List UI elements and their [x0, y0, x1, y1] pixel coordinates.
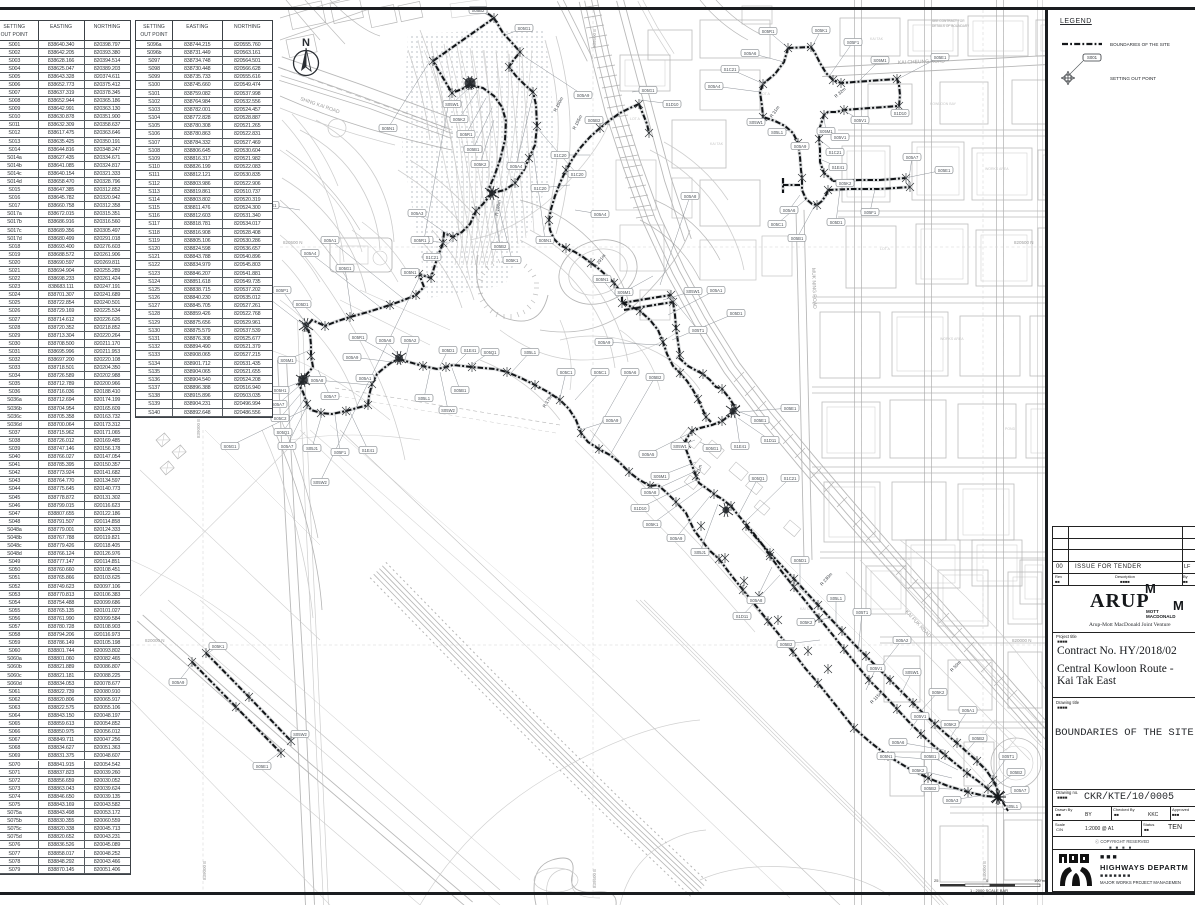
svg-text:S05Q1: S05Q1	[751, 476, 765, 481]
svg-text:S001: S001	[1087, 55, 1098, 60]
svg-text:820500 N: 820500 N	[283, 240, 303, 245]
svg-text:S05M1: S05M1	[653, 474, 667, 479]
svg-text:S05A8: S05A8	[644, 490, 657, 495]
svg-text:S05E1: S05E1	[256, 764, 269, 769]
svg-text:S1D10: S1D10	[894, 111, 907, 116]
svg-text:S05A1: S05A1	[962, 708, 975, 713]
svg-text:S05A1: S05A1	[710, 288, 723, 293]
svg-text:S05A9: S05A9	[598, 340, 611, 345]
svg-text:LOT A: LOT A	[630, 117, 641, 121]
svg-text:S05E1: S05E1	[938, 168, 951, 173]
svg-text:S05K2: S05K2	[912, 768, 925, 773]
svg-text:S05Q1: S05Q1	[483, 350, 497, 355]
svg-text:S05N1: S05N1	[404, 270, 417, 275]
svg-text:S05A7: S05A7	[324, 394, 337, 399]
svg-text:LOT A: LOT A	[880, 247, 891, 251]
svg-text:S1C21: S1C21	[829, 150, 842, 155]
svg-text:S05A9: S05A9	[577, 93, 590, 98]
svg-text:BOUNDARIES OF THE SITE: BOUNDARIES OF THE SITE	[1110, 42, 1170, 47]
svg-text:S05W1: S05W1	[445, 102, 459, 107]
svg-text:S05E1: S05E1	[784, 406, 797, 411]
svg-text:100 m: 100 m	[1034, 878, 1046, 883]
svg-text:S05L1: S05L1	[524, 350, 537, 355]
svg-text:S05Q1: S05Q1	[276, 430, 290, 435]
svg-text:S05L1: S05L1	[771, 130, 784, 135]
svg-text:S05A2: S05A2	[896, 638, 909, 643]
svg-text:S05V1: S05V1	[870, 666, 883, 671]
svg-text:S1E41: S1E41	[832, 165, 845, 170]
svg-text:S05A3: S05A3	[946, 798, 959, 803]
svg-text:S05C2: S05C2	[274, 416, 287, 421]
svg-text:S05A9: S05A9	[670, 536, 683, 541]
svg-text:S05B1: S05B1	[924, 754, 937, 759]
svg-text:S05C1: S05C1	[560, 370, 573, 375]
svg-text:S05F1: S05F1	[847, 40, 860, 45]
svg-text:S1D10: S1D10	[666, 102, 679, 107]
svg-text:S05A8: S05A8	[684, 194, 697, 199]
svg-text:S05A1: S05A1	[324, 238, 337, 243]
svg-text:S05B1: S05B1	[467, 147, 480, 152]
svg-text:S05A4: S05A4	[304, 251, 317, 256]
svg-text:S05W2: S05W2	[293, 732, 307, 737]
svg-text:S05K2: S05K2	[932, 690, 945, 695]
svg-text:S05A7: S05A7	[281, 444, 294, 449]
svg-text:S05G1: S05G1	[641, 88, 655, 93]
svg-text:S05K2: S05K2	[944, 722, 957, 727]
svg-text:S05E1: S05E1	[934, 55, 947, 60]
svg-text:S05D1: S05D1	[442, 348, 455, 353]
svg-text:S05M1: S05M1	[873, 58, 887, 63]
svg-text:S05R1: S05R1	[460, 132, 473, 137]
svg-text:S05A7: S05A7	[906, 155, 919, 160]
svg-text:S05L1: S05L1	[830, 596, 843, 601]
svg-text:S1D11: S1D11	[764, 438, 777, 443]
svg-text:S05T1: S05T1	[692, 328, 705, 333]
svg-text:S05R1: S05R1	[762, 29, 775, 34]
svg-text:S1D11: S1D11	[736, 614, 749, 619]
svg-text:S05E1: S05E1	[754, 418, 767, 423]
svg-text:S1D10: S1D10	[634, 506, 647, 511]
svg-text:S05D1: S05D1	[830, 220, 843, 225]
svg-text:S1C20: S1C20	[534, 186, 547, 191]
svg-text:S05B1: S05B1	[791, 236, 804, 241]
svg-text:S05K1: S05K1	[815, 28, 828, 33]
svg-text:839000 E: 839000 E	[202, 861, 207, 880]
svg-text:S05V1: S05V1	[914, 714, 927, 719]
svg-text:S05B2: S05B2	[649, 375, 662, 380]
svg-text:S05B2: S05B2	[588, 118, 601, 123]
svg-text:S05W1: S05W1	[673, 444, 687, 449]
svg-text:839500 E: 839500 E	[592, 869, 597, 888]
svg-text:S05A8: S05A8	[750, 598, 763, 603]
svg-text:S05B2: S05B2	[1010, 770, 1023, 775]
svg-text:S05A7: S05A7	[272, 402, 285, 407]
svg-text:S05W1: S05W1	[749, 120, 763, 125]
svg-text:S05F1: S05F1	[864, 210, 877, 215]
svg-text:S05K1: S05K1	[506, 258, 519, 263]
svg-text:S05K2: S05K2	[839, 181, 852, 186]
svg-text:WORKS AREA: WORKS AREA	[985, 167, 1009, 171]
svg-text:S05W1: S05W1	[905, 670, 919, 675]
svg-text:S05A3: S05A3	[411, 211, 424, 216]
svg-text:S05T1: S05T1	[1002, 754, 1015, 759]
svg-text:S1C20: S1C20	[554, 153, 567, 158]
svg-text:S05B2: S05B2	[972, 736, 985, 741]
svg-text:S05G1: S05G1	[223, 444, 237, 449]
svg-text:S1E41: S1E41	[734, 444, 747, 449]
svg-text:S05A6: S05A6	[783, 208, 796, 213]
svg-text:S05A1: S05A1	[359, 376, 372, 381]
svg-text:S05A6: S05A6	[744, 51, 757, 56]
svg-text:S1E41: S1E41	[362, 448, 375, 453]
svg-text:820000 N: 820000 N	[1012, 638, 1032, 643]
svg-text:S05A9: S05A9	[346, 355, 359, 360]
svg-text:KAI TAK: KAI TAK	[710, 142, 724, 146]
svg-text:S1C21: S1C21	[426, 255, 439, 260]
svg-text:SEE CONTRACT FOR: SEE CONTRACT FOR	[932, 19, 965, 23]
svg-text:N: N	[302, 37, 310, 49]
svg-text:S05D1: S05D1	[296, 302, 309, 307]
svg-text:KAI TAK: KAI TAK	[870, 37, 884, 41]
svg-text:S05A8: S05A8	[311, 378, 324, 383]
svg-text:S05G1: S05G1	[705, 446, 719, 451]
svg-text:S05W2: S05W2	[441, 408, 455, 413]
svg-text:S05A7: S05A7	[1014, 788, 1027, 793]
svg-text:S05N1: S05N1	[596, 277, 609, 282]
svg-text:25: 25	[934, 878, 939, 883]
svg-text:S05V1: S05V1	[854, 118, 867, 123]
svg-text:S05D1: S05D1	[794, 558, 807, 563]
svg-text:POND: POND	[1005, 427, 1016, 431]
svg-text:S05H1: S05H1	[274, 388, 287, 393]
svg-text:S1C21: S1C21	[724, 67, 737, 72]
svg-text:S05K1: S05K1	[212, 644, 225, 649]
svg-text:S05M1: S05M1	[819, 129, 833, 134]
svg-text:S05A4: S05A4	[708, 84, 721, 89]
svg-text:S05B2: S05B2	[494, 244, 507, 249]
svg-text:S05M1: S05M1	[280, 358, 294, 363]
svg-text:839000 E: 839000 E	[196, 419, 201, 438]
svg-text:S05F1: S05F1	[334, 450, 347, 455]
svg-text:S05A6: S05A6	[379, 338, 392, 343]
svg-text:DETAILS OF BOUNDARY: DETAILS OF BOUNDARY	[932, 24, 970, 28]
svg-text:S05N1: S05N1	[539, 238, 552, 243]
svg-text:S05K2: S05K2	[474, 162, 487, 167]
svg-text:S05A2: S05A2	[404, 338, 417, 343]
svg-text:S05A4: S05A4	[510, 164, 523, 169]
svg-text:S05K2: S05K2	[453, 117, 466, 122]
svg-text:S05N1: S05N1	[382, 126, 395, 131]
svg-text:WORKS AREA: WORKS AREA	[940, 337, 964, 341]
svg-text:S05C1: S05C1	[771, 222, 784, 227]
svg-text:S05R1: S05R1	[352, 335, 365, 340]
svg-text:820500 N: 820500 N	[1014, 240, 1034, 245]
svg-text:S05J1: S05J1	[306, 446, 319, 451]
svg-text:S05G1: S05G1	[517, 26, 531, 31]
svg-text:S05V1: S05V1	[834, 135, 847, 140]
svg-text:LOT A: LOT A	[900, 557, 911, 561]
svg-text:S1C21: S1C21	[784, 476, 797, 481]
svg-text:S05C1: S05C1	[594, 370, 607, 375]
svg-text:839500 E: 839500 E	[592, 29, 597, 48]
svg-text:S05A6: S05A6	[624, 370, 637, 375]
svg-text:S1E41: S1E41	[464, 348, 477, 353]
svg-text:S05A5: S05A5	[642, 452, 655, 457]
svg-text:S05B1: S05B1	[454, 388, 467, 393]
svg-text:S05G1: S05G1	[338, 266, 352, 271]
svg-text:S05L1: S05L1	[418, 396, 431, 401]
svg-text:S1C20: S1C20	[571, 172, 584, 177]
svg-text:820000 N: 820000 N	[145, 638, 165, 643]
svg-text:S05W2: S05W2	[313, 480, 327, 485]
svg-text:S05P1: S05P1	[276, 288, 289, 293]
svg-text:S05K2: S05K2	[800, 620, 813, 625]
svg-text:S05K1: S05K1	[646, 522, 659, 527]
svg-text:S05T1: S05T1	[856, 610, 869, 615]
svg-text:S05W1: S05W1	[686, 289, 700, 294]
svg-text:S05A9: S05A9	[794, 144, 807, 149]
svg-text:S05R1: S05R1	[414, 238, 427, 243]
svg-text:S05A4: S05A4	[594, 212, 607, 217]
svg-text:S05A9: S05A9	[606, 418, 619, 423]
svg-text:SETTING OUT POINT: SETTING OUT POINT	[1110, 76, 1156, 81]
svg-text:S05B2: S05B2	[780, 642, 793, 647]
svg-text:S05D1: S05D1	[730, 311, 743, 316]
svg-text:S05J1: S05J1	[694, 550, 707, 555]
svg-text:S05L1: S05L1	[1006, 804, 1019, 809]
svg-text:S05M1: S05M1	[617, 290, 631, 295]
svg-text:S05A6: S05A6	[892, 740, 905, 745]
svg-text:S05N1: S05N1	[880, 754, 893, 759]
svg-text:KOWLOON BAY: KOWLOON BAY	[930, 102, 957, 106]
svg-text:S05B2: S05B2	[924, 786, 937, 791]
svg-text:S05A9: S05A9	[172, 680, 185, 685]
